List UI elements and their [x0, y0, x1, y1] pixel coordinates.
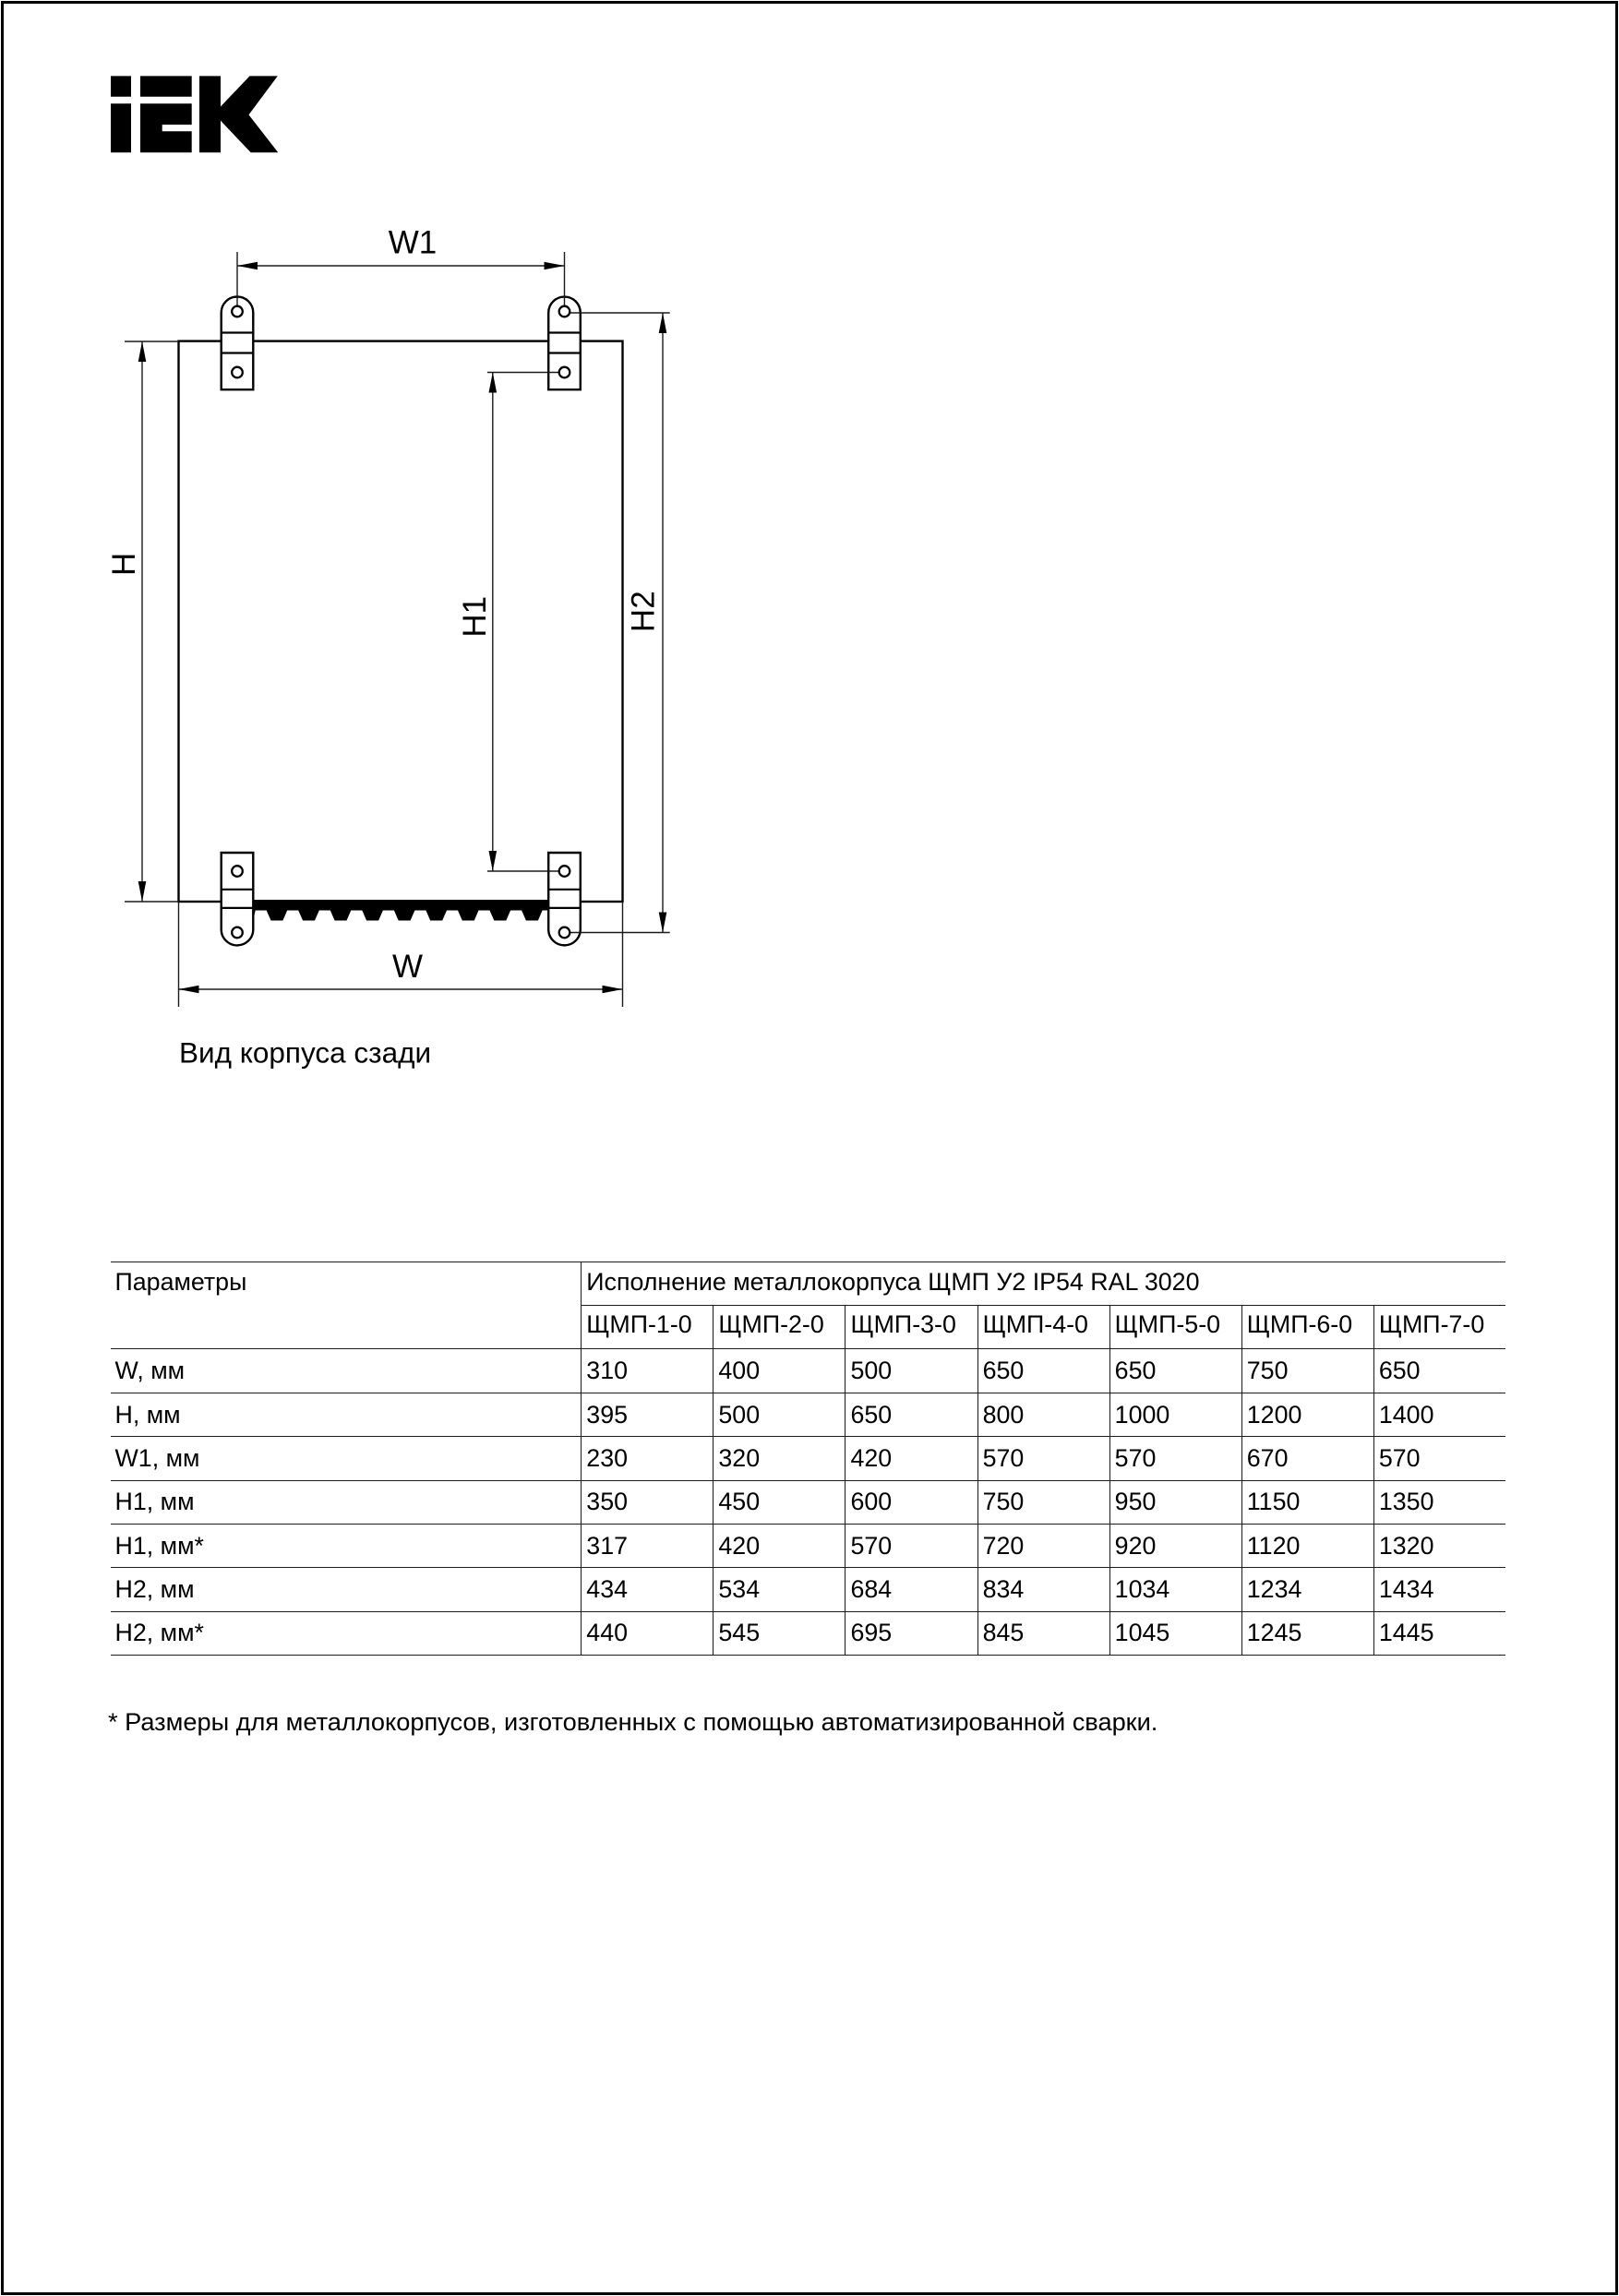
svg-text:Вид корпуса сзади: Вид корпуса сзади [179, 1036, 431, 1070]
svg-text:W1: W1 [389, 225, 438, 261]
svg-text:H1: H1 [457, 596, 493, 638]
svg-text:H: H [106, 553, 142, 576]
svg-text:W: W [392, 949, 423, 985]
svg-text:H2: H2 [625, 591, 661, 632]
